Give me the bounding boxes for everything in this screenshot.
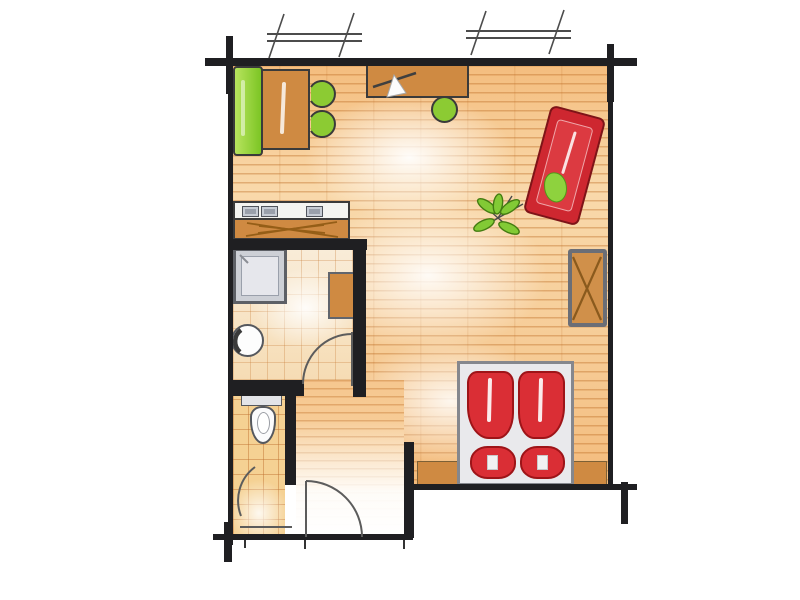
bed-duvet-left: [467, 371, 514, 439]
pillow-left-center: [487, 455, 498, 470]
dining-bench: [233, 66, 263, 156]
corner-post-top-left: [226, 36, 233, 94]
kitchen-counter-base: [233, 220, 350, 240]
window-left: [267, 13, 362, 58]
pillow-right-center: [537, 455, 548, 470]
floor-plan-canvas: [0, 0, 800, 600]
jamb-ticks: [245, 540, 404, 549]
toilet-cistern: [241, 395, 282, 406]
wall-left: [228, 62, 233, 545]
washbasin: [231, 324, 264, 357]
toilet-bowl-inner: [257, 412, 270, 434]
wall-bathroom-top: [228, 239, 367, 250]
kitchen-appliance-1: [242, 206, 259, 217]
wall-bottom-bedroom: [410, 484, 637, 490]
shower-inner: [241, 256, 279, 296]
wall-top: [205, 58, 637, 66]
window-right: [466, 10, 571, 55]
entry-hall-floor: [296, 380, 404, 535]
corner-post-bottom-left: [224, 522, 232, 562]
wall-right: [608, 62, 613, 490]
corner-post-top-right: [607, 44, 614, 102]
wall-bottom-entry: [213, 534, 413, 540]
kitchen-appliance-3: [306, 206, 323, 217]
wall-wc-right: [285, 390, 296, 485]
dining-table: [261, 69, 310, 150]
bed-duvet-right: [518, 371, 565, 439]
sofa-green-cushion: [544, 172, 568, 202]
wall-hall-bedroom-stub: [404, 442, 414, 538]
shower-tray: [233, 248, 287, 304]
desk-stool: [431, 96, 458, 123]
kitchen-appliance-2: [261, 206, 278, 217]
wardrobe: [568, 249, 607, 327]
desk: [366, 62, 469, 98]
wall-bathroom-right: [353, 239, 366, 397]
bathroom-cabinet: [328, 272, 355, 319]
corner-post-bottom-right: [621, 482, 628, 524]
